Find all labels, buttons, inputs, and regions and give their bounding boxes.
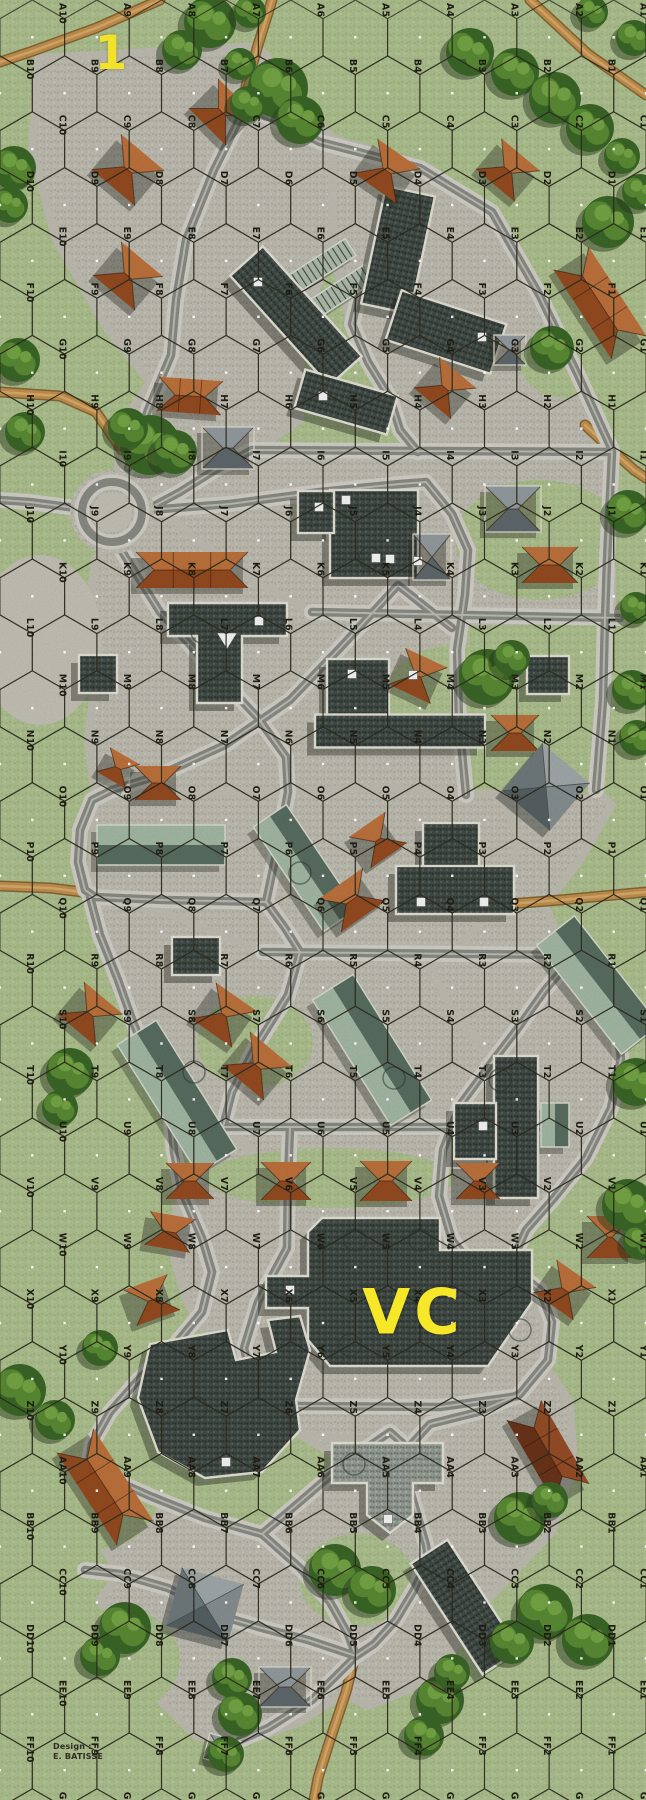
hex-center-dot [31, 36, 33, 38]
hex-label-K4: K4 [444, 562, 455, 577]
hex-center-dot [63, 316, 65, 318]
hex-center-dot [63, 1322, 65, 1324]
hex-label-B8: B8 [153, 59, 164, 73]
hex-center-dot [354, 1490, 356, 1492]
hex-label-S6: S6 [315, 1009, 326, 1023]
hex-center-dot [354, 1042, 356, 1044]
hex-label-B4: B4 [412, 59, 423, 73]
hex-center-dot [322, 763, 324, 765]
hex-center-dot [225, 1378, 227, 1380]
hex-center-dot [63, 1769, 65, 1771]
hex-label-A8: A8 [186, 3, 197, 17]
hex-label-G5: G5 [379, 338, 390, 353]
hex-label-T5: T5 [347, 1065, 358, 1078]
hex-label-P3: P3 [476, 842, 487, 856]
hex-label-O1: O1 [638, 786, 646, 801]
hex-label-X1: X1 [605, 1289, 616, 1303]
hex-center-dot [419, 595, 421, 597]
hex-center-dot [322, 539, 324, 541]
hex-label-N7: N7 [218, 730, 229, 745]
hex-center-dot [613, 1154, 615, 1156]
hex-label-DD2: DD2 [541, 1624, 552, 1647]
hex-label-Y1: Y1 [638, 1344, 646, 1359]
hex-center-dot [613, 148, 615, 150]
hex-center-dot [580, 539, 582, 541]
hex-center-dot [225, 1713, 227, 1715]
hex-label-A9: A9 [121, 3, 132, 17]
hex-center-dot [354, 1713, 356, 1715]
hex-label-S1: S1 [638, 1009, 646, 1023]
hex-label-E1: E1 [638, 227, 646, 240]
hex-label-CC2: CC2 [573, 1568, 584, 1589]
hex-center-dot [160, 1378, 162, 1380]
hex-label-T6: T6 [282, 1065, 293, 1078]
hex-label-J8: J8 [153, 505, 164, 517]
hex-label-D9: D9 [89, 171, 100, 186]
hex-label-T2: T2 [541, 1065, 552, 1078]
hex-center-dot [386, 1545, 388, 1547]
hex-label-K1: K1 [638, 562, 646, 576]
hex-center-dot [63, 875, 65, 877]
hex-label-S10: S10 [56, 1009, 67, 1030]
hex-label-V8: V8 [153, 1177, 164, 1191]
hex-center-dot [354, 1601, 356, 1603]
hex-label-T4: T4 [412, 1065, 423, 1079]
hex-center-dot [257, 1322, 259, 1324]
hex-label-W3: W3 [509, 1233, 520, 1250]
hex-center-dot [451, 1657, 453, 1659]
hex-center-dot [290, 1154, 292, 1156]
hex-center-dot [354, 931, 356, 933]
hex-label-F7: F7 [218, 283, 229, 296]
hex-label-Z6: Z6 [282, 1401, 293, 1415]
hex-label-X2: X2 [541, 1289, 552, 1303]
hex-label-M1: M1 [638, 674, 646, 690]
board-number: 1 [95, 26, 128, 81]
hex-label-D2: D2 [541, 171, 552, 186]
hex-center-dot [451, 1434, 453, 1436]
hex-label-M5: M5 [379, 674, 390, 690]
hex-label-E6: E6 [315, 227, 326, 240]
hex-label-J2: J2 [541, 505, 552, 517]
hex-label-DD8: DD8 [153, 1624, 164, 1647]
hex-label-L4: L4 [412, 618, 423, 631]
hex-label-U2: U2 [573, 1121, 584, 1136]
hex-label-D4: D4 [412, 171, 423, 186]
hex-label-GG1: GG1 [638, 1792, 646, 1800]
hex-label-D7: D7 [218, 171, 229, 186]
hex-center-dot [419, 819, 421, 821]
hex-center-dot [613, 1378, 615, 1380]
hex-center-dot [322, 204, 324, 206]
hex-label-K10: K10 [56, 562, 67, 583]
hex-center-dot [225, 483, 227, 485]
hex-center-dot [225, 1042, 227, 1044]
hex-label-Z2: Z2 [541, 1401, 552, 1415]
hex-label-A10: A10 [56, 3, 67, 24]
hex-center-dot [516, 986, 518, 988]
hex-label-Q7: Q7 [250, 897, 261, 912]
hex-center-dot [63, 204, 65, 206]
hex-center-dot [128, 427, 130, 429]
hex-label-Q5: Q5 [379, 897, 390, 912]
hex-center-dot [419, 148, 421, 150]
hex-label-R6: R6 [282, 953, 293, 967]
hex-center-dot [322, 1210, 324, 1212]
hex-label-O10: O10 [56, 786, 67, 808]
hex-label-BB2: BB2 [541, 1512, 552, 1534]
hex-center-dot [0, 1657, 1, 1659]
hex-center-dot [613, 819, 615, 821]
hex-center-dot [322, 316, 324, 318]
hex-center-dot [193, 1657, 195, 1659]
hex-center-dot [419, 1378, 421, 1380]
design-credit-line2: E. BATISSE [53, 1752, 103, 1762]
hex-label-DD6: DD6 [282, 1624, 293, 1647]
hex-center-dot [451, 204, 453, 206]
hex-label-Y7: Y7 [250, 1344, 261, 1359]
hex-center-dot [322, 1769, 324, 1771]
hex-label-H3: H3 [476, 394, 487, 409]
hex-center-dot [451, 763, 453, 765]
hex-label-J7: J7 [218, 505, 229, 517]
hex-label-GG2: GG2 [573, 1792, 584, 1800]
hex-center-dot [354, 148, 356, 150]
hex-center-dot [96, 1713, 98, 1715]
hex-label-AA3: AA3 [509, 1456, 520, 1478]
hex-center-dot [31, 1601, 33, 1603]
hex-label-GG3: GG3 [509, 1792, 520, 1800]
hex-label-A4: A4 [444, 3, 455, 17]
hex-center-dot [548, 1154, 550, 1156]
hex-center-dot [0, 316, 1, 318]
hex-label-FF8: FF8 [153, 1736, 164, 1756]
hex-label-X8: X8 [153, 1289, 164, 1303]
hex-label-L7: L7 [218, 618, 229, 631]
hex-label-X7: X7 [218, 1289, 229, 1303]
hex-label-G6: G6 [315, 338, 326, 353]
hex-label-D5: D5 [347, 171, 358, 186]
hex-center-dot [290, 483, 292, 485]
hex-label-C5: C5 [379, 115, 390, 129]
hex-center-dot [225, 931, 227, 933]
hex-label-A5: A5 [379, 3, 390, 17]
hex-label-C4: C4 [444, 115, 455, 129]
hex-label-M9: M9 [121, 674, 132, 690]
hex-center-dot [225, 595, 227, 597]
hex-center-dot [451, 1769, 453, 1771]
hex-label-H6: H6 [282, 394, 293, 409]
hex-center-dot [63, 986, 65, 988]
hex-center-dot [419, 1490, 421, 1492]
hex-label-N5: N5 [347, 730, 358, 745]
hex-center-dot [225, 707, 227, 709]
hex-center-dot [354, 707, 356, 709]
hex-label-GG10: GG10 [56, 1792, 67, 1800]
hex-label-Q10: Q10 [56, 897, 67, 919]
hex-center-dot [386, 875, 388, 877]
hex-center-dot [354, 819, 356, 821]
hex-label-S9: S9 [121, 1009, 132, 1023]
hex-label-R2: R2 [541, 953, 552, 967]
hex-center-dot [96, 1154, 98, 1156]
hex-center-dot [128, 92, 130, 94]
hex-label-CC6: CC6 [315, 1568, 326, 1589]
hex-label-G1: G1 [638, 338, 646, 353]
hex-center-dot [419, 1042, 421, 1044]
hex-label-FF3: FF3 [476, 1736, 487, 1756]
hex-label-S3: S3 [509, 1009, 520, 1023]
hex-label-P5: P5 [347, 842, 358, 856]
hex-label-L10: L10 [24, 618, 35, 638]
hex-label-G2: G2 [573, 338, 584, 353]
hex-label-M10: M10 [56, 674, 67, 697]
hex-center-dot [322, 1098, 324, 1100]
hex-label-A2: A2 [573, 3, 584, 17]
hex-label-M2: M2 [573, 674, 584, 690]
hex-center-dot [483, 819, 485, 821]
hex-label-I9: I9 [121, 450, 132, 461]
hex-center-dot [322, 651, 324, 653]
hex-label-O3: O3 [509, 786, 520, 801]
hex-label-Y10: Y10 [56, 1344, 67, 1366]
hex-center-dot [31, 1154, 33, 1156]
hex-label-DD10: DD10 [24, 1624, 35, 1654]
hex-label-BB8: BB8 [153, 1512, 164, 1534]
hex-center-dot [483, 1490, 485, 1492]
hex-center-dot [0, 1322, 1, 1324]
hex-center-dot [580, 427, 582, 429]
hex-center-dot [548, 1601, 550, 1603]
hex-center-dot [516, 1434, 518, 1436]
hex-label-N3: N3 [476, 730, 487, 745]
hex-center-dot [193, 1098, 195, 1100]
hex-center-dot [160, 36, 162, 38]
hex-label-J6: J6 [282, 505, 293, 517]
hex-label-V4: V4 [412, 1177, 423, 1191]
hex-center-dot [160, 1266, 162, 1268]
hex-center-dot [257, 875, 259, 877]
hex-center-dot [193, 1322, 195, 1324]
hex-label-Z7: Z7 [218, 1401, 229, 1415]
hex-center-dot [386, 427, 388, 429]
hex-center-dot [257, 1098, 259, 1100]
hex-label-I8: I8 [186, 450, 197, 461]
hex-label-K2: K2 [573, 562, 584, 576]
hex-label-O7: O7 [250, 786, 261, 801]
hex-center-dot [322, 1434, 324, 1436]
hex-center-dot [613, 260, 615, 262]
hex-center-dot [160, 707, 162, 709]
hex-center-dot [386, 651, 388, 653]
hex-label-DD4: DD4 [412, 1624, 423, 1647]
hex-label-AA2: AA2 [573, 1456, 584, 1478]
hex-center-dot [31, 819, 33, 821]
hex-center-dot [96, 931, 98, 933]
hex-center-dot [483, 483, 485, 485]
hex-label-D10: D10 [24, 171, 35, 193]
hex-center-dot [354, 260, 356, 262]
hex-center-dot [613, 595, 615, 597]
hex-label-F9: F9 [89, 283, 100, 296]
hex-center-dot [63, 427, 65, 429]
hex-label-O6: O6 [315, 786, 326, 801]
hex-center-dot [516, 1322, 518, 1324]
hex-label-D6: D6 [282, 171, 293, 186]
hex-label-L6: L6 [282, 618, 293, 631]
hex-center-dot [451, 427, 453, 429]
hex-center-dot [386, 204, 388, 206]
vc-victory-label: VC [362, 1276, 463, 1349]
hex-label-Q4: Q4 [444, 897, 455, 912]
hex-center-dot [257, 539, 259, 541]
hex-label-R5: R5 [347, 953, 358, 967]
hex-center-dot [322, 1657, 324, 1659]
hex-center-dot [193, 875, 195, 877]
hex-center-dot [63, 651, 65, 653]
hex-center-dot [225, 372, 227, 374]
hex-label-I1: I1 [638, 450, 646, 461]
hex-center-dot [451, 875, 453, 877]
hex-label-P6: P6 [282, 842, 293, 856]
hex-label-I3: I3 [509, 450, 520, 461]
hex-center-dot [516, 1098, 518, 1100]
hex-center-dot [257, 316, 259, 318]
hex-center-dot [354, 1378, 356, 1380]
hex-label-P10: P10 [24, 842, 35, 863]
hex-center-dot [548, 148, 550, 150]
map-board: A1A2A3A4A5A6A7A8A9A10B1B2B3B4B5B6B7B8B9B… [0, 0, 646, 1800]
hex-grid-layer: A1A2A3A4A5A6A7A8A9A10B1B2B3B4B5B6B7B8B9B… [0, 0, 646, 1800]
hex-label-P8: P8 [153, 842, 164, 856]
hex-label-R4: R4 [412, 953, 423, 967]
hex-center-dot [548, 1042, 550, 1044]
hex-label-I10: I10 [56, 450, 67, 468]
hex-center-dot [516, 539, 518, 541]
hex-center-dot [160, 819, 162, 821]
hex-center-dot [193, 1769, 195, 1771]
hex-label-P7: P7 [218, 842, 229, 856]
hex-label-C8: C8 [186, 115, 197, 129]
hex-label-C7: C7 [250, 115, 261, 129]
hex-label-E9: E9 [121, 227, 132, 240]
hex-label-J3: J3 [476, 505, 487, 517]
hex-label-F2: F2 [541, 283, 552, 296]
hex-label-I4: I4 [444, 450, 455, 461]
hex-center-dot [322, 1322, 324, 1324]
hex-center-dot [290, 148, 292, 150]
hex-center-dot [193, 1545, 195, 1547]
hex-label-U5: U5 [379, 1121, 390, 1136]
hex-label-AA1: AA1 [638, 1456, 646, 1478]
hex-label-C10: C10 [56, 115, 67, 136]
hex-center-dot [96, 483, 98, 485]
hex-label-O2: O2 [573, 786, 584, 801]
hex-label-Z4: Z4 [412, 1401, 423, 1415]
hex-center-dot [386, 1098, 388, 1100]
hex-center-dot [225, 36, 227, 38]
hex-label-CC4: CC4 [444, 1568, 455, 1589]
hex-center-dot [516, 651, 518, 653]
hex-center-dot [580, 1322, 582, 1324]
hex-label-Q2: Q2 [573, 897, 584, 912]
hex-label-GG4: GG4 [444, 1792, 455, 1800]
hex-center-dot [160, 260, 162, 262]
hex-center-dot [257, 1657, 259, 1659]
hex-center-dot [257, 92, 259, 94]
hex-center-dot [419, 372, 421, 374]
hex-center-dot [322, 92, 324, 94]
hex-label-L5: L5 [347, 618, 358, 631]
hex-center-dot [193, 986, 195, 988]
hex-center-dot [516, 1210, 518, 1212]
hex-center-dot [193, 539, 195, 541]
hex-center-dot [613, 707, 615, 709]
hex-center-dot [63, 1657, 65, 1659]
hex-label-R9: R9 [89, 953, 100, 967]
hex-center-dot [483, 1154, 485, 1156]
hex-label-B7: B7 [218, 59, 229, 73]
hex-center-dot [419, 1601, 421, 1603]
hex-center-dot [160, 372, 162, 374]
hex-center-dot [96, 819, 98, 821]
hex-center-dot [225, 1154, 227, 1156]
hex-center-dot [290, 931, 292, 933]
hex-label-Y6: Y6 [315, 1344, 326, 1359]
hex-label-N10: N10 [24, 730, 35, 752]
hex-center-dot [160, 1490, 162, 1492]
hex-label-N6: N6 [282, 730, 293, 745]
hex-label-U1: U1 [638, 1121, 646, 1136]
hex-label-N2: N2 [541, 730, 552, 745]
hex-center-dot [354, 595, 356, 597]
hex-label-Q1: Q1 [638, 897, 646, 912]
hex-center-dot [193, 204, 195, 206]
hex-label-I2: I2 [573, 450, 584, 461]
hex-center-dot [580, 1434, 582, 1436]
hex-label-N1: N1 [605, 730, 616, 745]
hex-center-dot [128, 986, 130, 988]
hex-center-dot [290, 707, 292, 709]
hex-center-dot [419, 931, 421, 933]
hex-center-dot [31, 1042, 33, 1044]
hex-label-B2: B2 [541, 59, 552, 73]
hex-center-dot [516, 427, 518, 429]
hex-center-dot [322, 1545, 324, 1547]
hex-label-R8: R8 [153, 953, 164, 967]
hex-label-BB10: BB10 [24, 1512, 35, 1541]
hex-label-FF6: FF6 [282, 1736, 293, 1756]
hex-label-Y2: Y2 [573, 1344, 584, 1359]
hex-center-dot [386, 92, 388, 94]
hex-center-dot [96, 595, 98, 597]
map-svg: A1A2A3A4A5A6A7A8A9A10B1B2B3B4B5B6B7B8B9B… [0, 0, 646, 1800]
hex-center-dot [0, 204, 1, 206]
hex-label-L1: L1 [605, 618, 616, 631]
hex-label-BB5: BB5 [347, 1512, 358, 1534]
hex-label-U7: U7 [250, 1121, 261, 1136]
hex-label-U4: U4 [444, 1121, 455, 1136]
hex-center-dot [613, 1042, 615, 1044]
hex-center-dot [160, 483, 162, 485]
hex-label-AA10: AA10 [56, 1456, 67, 1485]
hex-label-Z3: Z3 [476, 1401, 487, 1415]
hex-label-CC3: CC3 [509, 1568, 520, 1589]
hex-label-D8: D8 [153, 171, 164, 186]
hex-center-dot [193, 427, 195, 429]
hex-label-P9: P9 [89, 842, 100, 856]
hex-label-DD9: DD9 [89, 1624, 100, 1647]
